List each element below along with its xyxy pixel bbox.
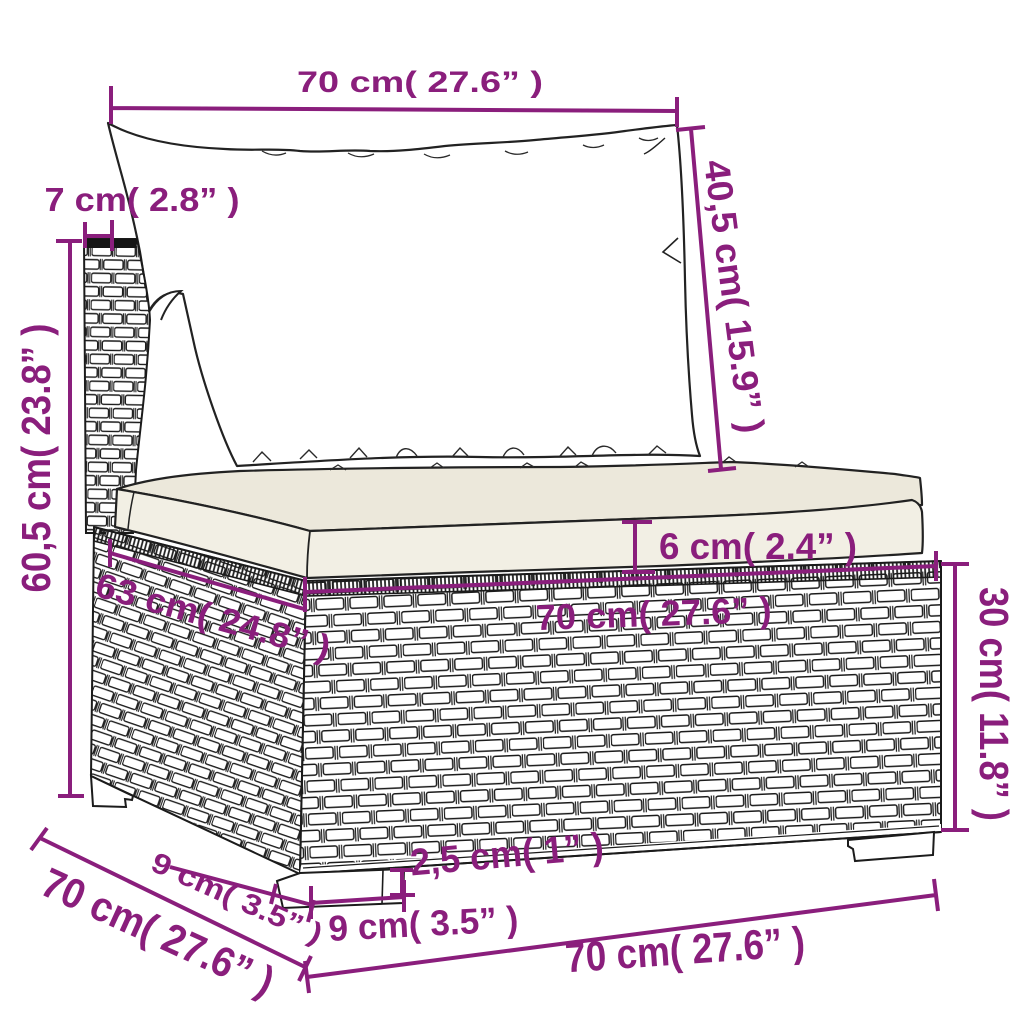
svg-text:6 cm( 2.4” ): 6 cm( 2.4” )	[659, 526, 857, 567]
svg-text:60,5 cm( 23.8” ): 60,5 cm( 23.8” )	[13, 324, 59, 593]
svg-text:7 cm( 2.8” ): 7 cm( 2.8” )	[45, 181, 240, 218]
svg-text:70 cm( 27.6” ): 70 cm( 27.6” )	[297, 66, 543, 99]
svg-text:30 cm( 11.8” ): 30 cm( 11.8” )	[971, 587, 1017, 821]
svg-text:70 cm( 27.6” ): 70 cm( 27.6” )	[535, 589, 772, 638]
